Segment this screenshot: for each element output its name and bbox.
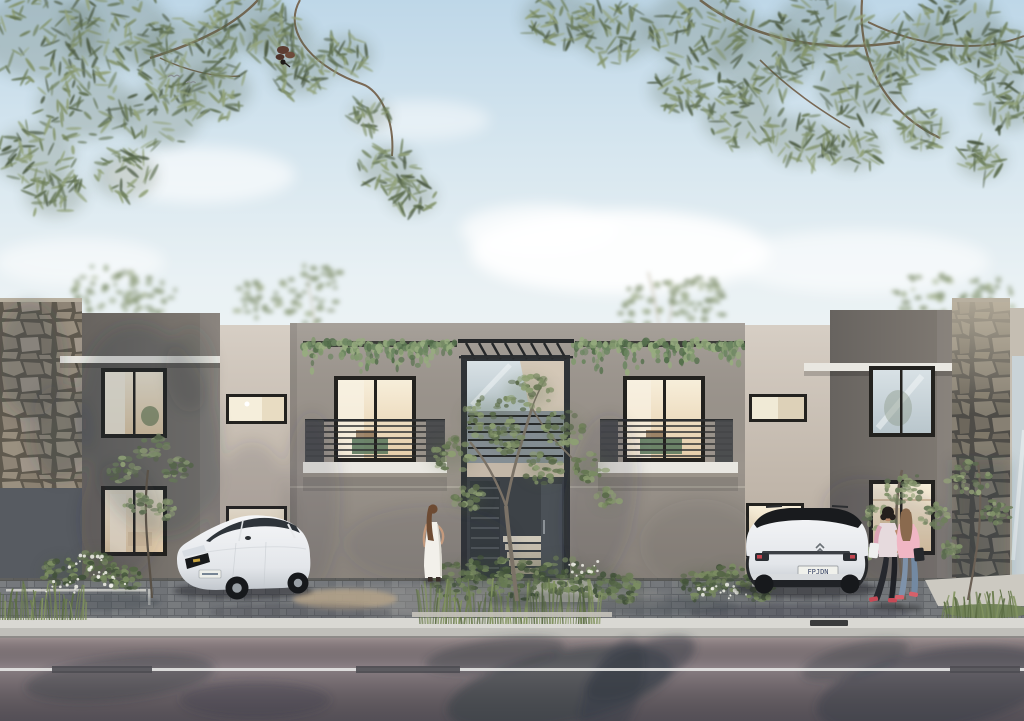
entry-door-handle bbox=[543, 520, 545, 534]
stone-pier-cap bbox=[952, 298, 1010, 302]
suv-wheel-left bbox=[755, 575, 774, 594]
window-beige-right-upper bbox=[749, 394, 807, 422]
planter-edge bbox=[412, 612, 612, 617]
lane-line bbox=[0, 668, 1024, 671]
woman-shoe-right bbox=[436, 577, 441, 582]
scene-svg: FPJDN bbox=[0, 0, 1024, 721]
suv-wheel-right bbox=[841, 575, 860, 594]
curb-drain bbox=[810, 620, 848, 626]
stone-wall-left-cap bbox=[0, 298, 82, 302]
woman-shoe-left bbox=[428, 577, 433, 582]
suv-light-bar bbox=[762, 551, 850, 554]
window-beige-left-upper bbox=[226, 394, 287, 424]
hatchback-mirror bbox=[245, 536, 251, 540]
window-upper-right bbox=[869, 366, 935, 437]
rendering-canvas: FPJDN bbox=[0, 0, 1024, 721]
curb-face bbox=[0, 628, 1024, 636]
curb-top bbox=[0, 618, 1024, 628]
